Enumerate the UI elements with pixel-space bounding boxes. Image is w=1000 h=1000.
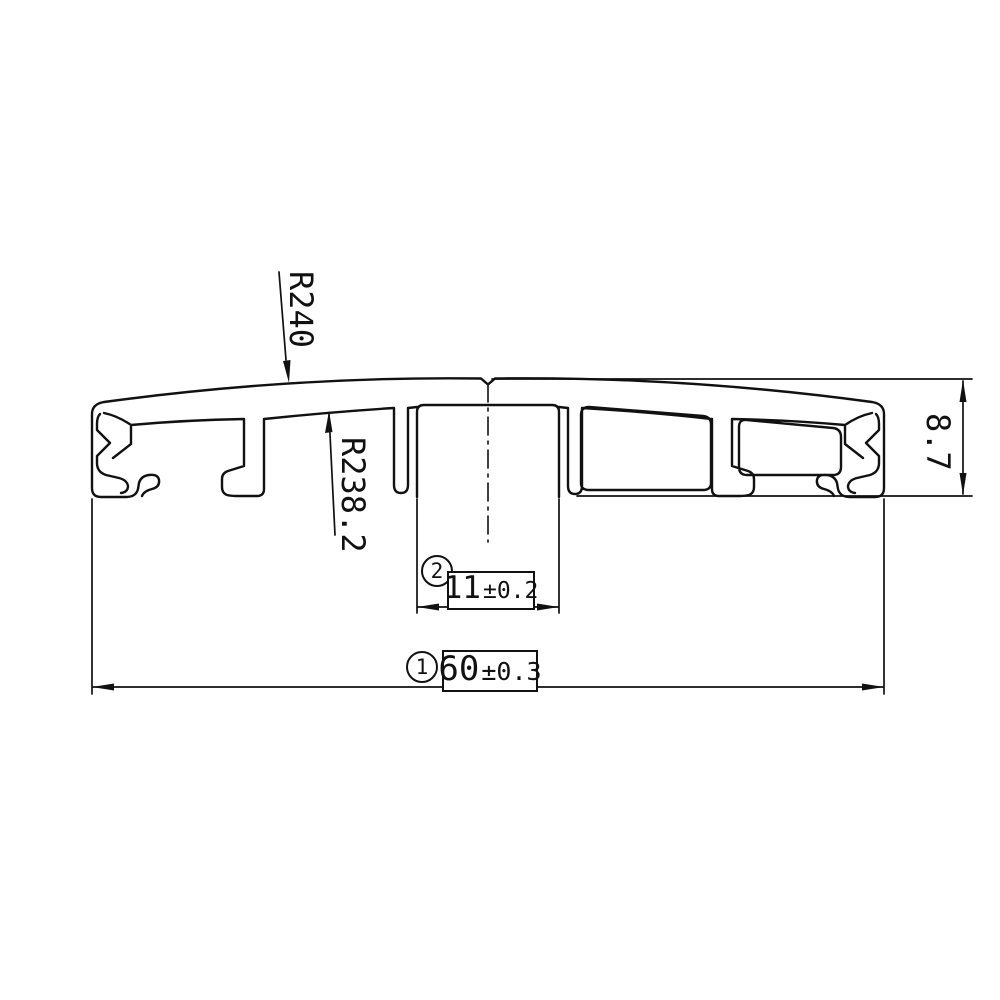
radius-outer-label: R240: [282, 271, 320, 348]
dimension-lines: [92, 379, 972, 694]
dimension-box-11: 11 ±0.2: [447, 571, 535, 610]
arrow-left-60: [92, 684, 114, 691]
dimension-arrows: [92, 360, 967, 691]
dimension-tolerance-60: ±0.3: [481, 659, 541, 684]
profile-drawing: [0, 0, 1000, 1000]
arrow-up-8-7: [960, 380, 967, 402]
arrow-right-11: [537, 604, 559, 611]
dimension-tolerance-11: ±0.2: [483, 580, 538, 603]
arrow-down-8-7: [960, 473, 967, 495]
dimension-box-60: 60 ±0.3: [442, 650, 538, 692]
balloon-number-1: 1: [406, 651, 438, 683]
dimension-value-60: 60: [438, 652, 479, 686]
arrow-left-11: [417, 604, 439, 611]
arrow-leader-r240: [283, 360, 291, 383]
technical-drawing-page: R240 R238.2 8.7 2 11 ±0.2 1 60 ±0.3: [0, 0, 1000, 1000]
arrow-leader-r238: [325, 411, 333, 433]
height-dimension-label: 8.7: [919, 413, 957, 471]
dimension-value-11: 11: [444, 573, 481, 604]
radius-inner-label: R238.2: [334, 437, 372, 553]
arrow-right-60: [862, 684, 884, 691]
